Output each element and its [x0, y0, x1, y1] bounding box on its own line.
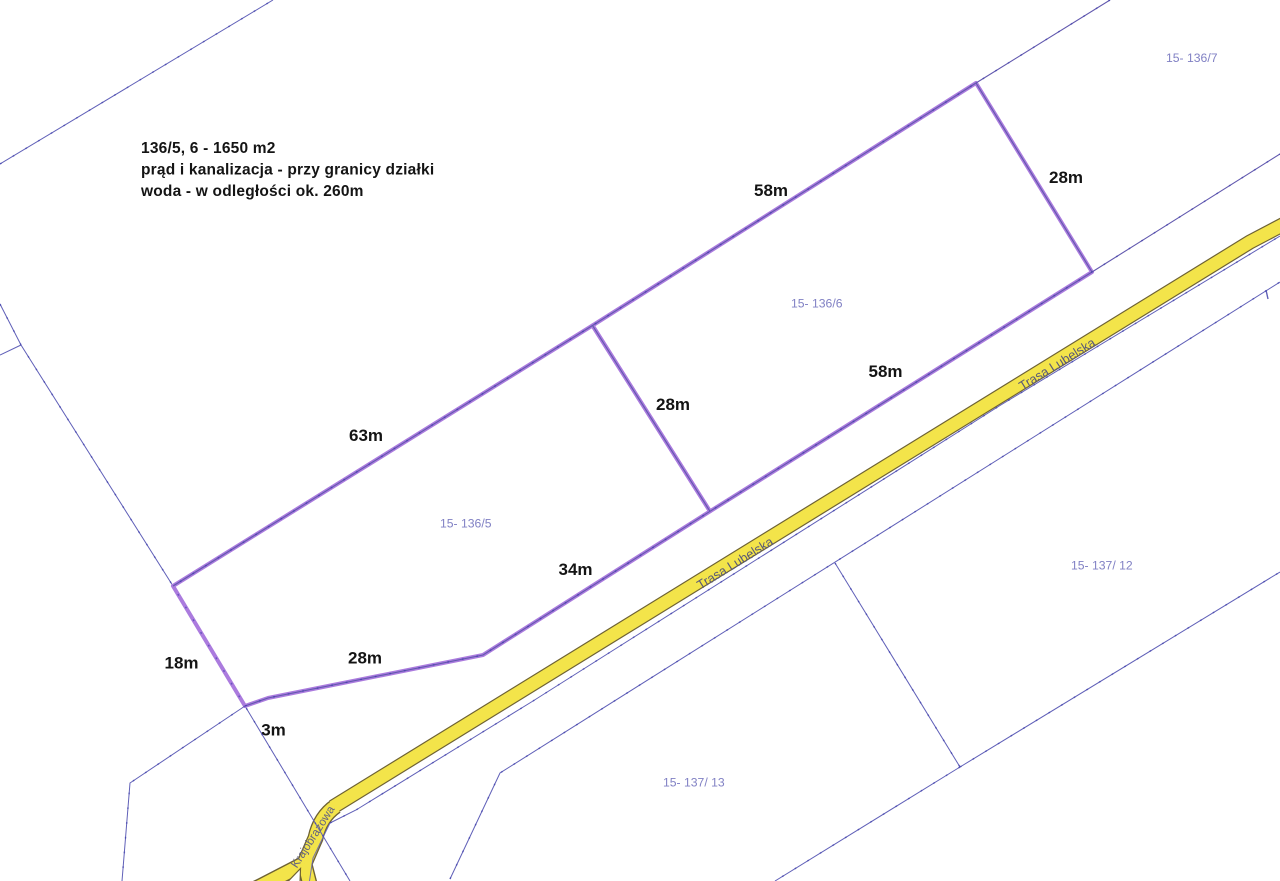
svg-text:18m: 18m	[164, 654, 198, 673]
svg-text:63m: 63m	[349, 426, 383, 445]
svg-text:28m: 28m	[656, 395, 690, 414]
svg-text:15- 136/6: 15- 136/6	[791, 297, 843, 311]
svg-text:woda - w odległości ok. 260m: woda - w odległości ok. 260m	[140, 183, 364, 200]
svg-text:28m: 28m	[1049, 168, 1083, 187]
svg-text:58m: 58m	[754, 181, 788, 200]
svg-text:prąd i kanalizacja - przy gran: prąd i kanalizacja - przy granicy działk…	[141, 162, 434, 179]
svg-text:136/5, 6 - 1650 m2: 136/5, 6 - 1650 m2	[141, 140, 276, 157]
svg-text:15- 136/5: 15- 136/5	[440, 517, 492, 531]
svg-text:3m: 3m	[261, 721, 286, 740]
svg-text:34m: 34m	[558, 560, 592, 579]
svg-text:28m: 28m	[348, 649, 382, 668]
svg-text:15- 137/ 13: 15- 137/ 13	[663, 776, 725, 790]
svg-text:15- 137/ 12: 15- 137/ 12	[1071, 559, 1133, 573]
svg-text:58m: 58m	[868, 362, 902, 381]
svg-text:15- 136/7: 15- 136/7	[1166, 51, 1218, 65]
